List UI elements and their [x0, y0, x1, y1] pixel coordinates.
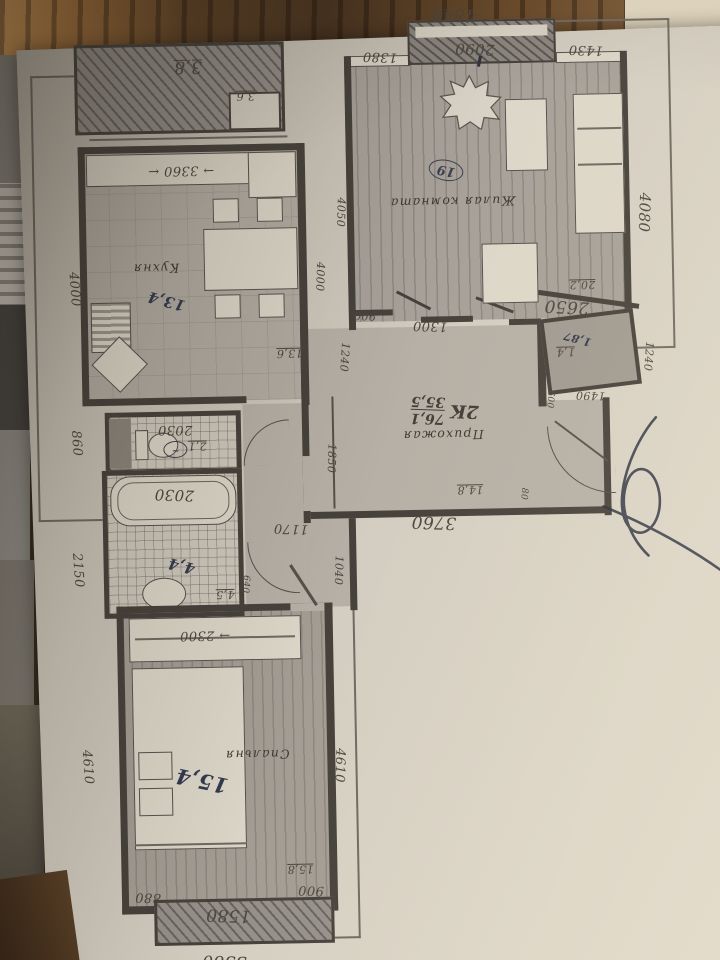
- room-number-living-pen: 19: [427, 157, 465, 184]
- dim-900-bedroom: 900: [298, 883, 324, 897]
- dim-2090: 2090: [455, 41, 495, 57]
- dim-4000: 4000: [67, 272, 82, 308]
- dim-860: 860: [69, 430, 84, 457]
- area-kitchen-pen: 13,4: [146, 289, 187, 313]
- dim-80: 80: [518, 487, 528, 500]
- dim-3760: 3760: [411, 512, 456, 530]
- dim-2030-bath: 2030: [154, 486, 194, 502]
- area-bath: 4,5: [216, 589, 235, 600]
- dim-880: 880: [135, 890, 161, 904]
- dim-3360-bottom: 3360: [201, 951, 246, 960]
- area-kitchen: 13,6: [276, 348, 302, 359]
- room-name-hall: Прихожая: [402, 427, 483, 441]
- area-loggia-1: 3,8: [174, 57, 203, 75]
- dim-600: 600: [544, 390, 554, 409]
- dim-4000-b: 4000: [314, 262, 326, 292]
- area-living: 20,2: [569, 279, 595, 290]
- dim-1490: 1490: [575, 390, 605, 402]
- dim-640: 640: [240, 575, 250, 594]
- area-loggia-1b: 3,6: [236, 90, 255, 101]
- area-bedroom-pen: 15,4: [174, 765, 230, 796]
- dim-1380: 1380: [362, 49, 397, 63]
- area-hall: 14,8: [457, 484, 483, 495]
- dim-1170: 1170: [273, 521, 308, 535]
- room-name-bedroom: Спальня: [225, 747, 290, 761]
- dim-1580: 1580: [206, 905, 251, 923]
- dim-4610-left: 4610: [80, 750, 95, 786]
- floor-plan-drawing: 2К 76,1 35,5 48401380209014303,83,6→ 336…: [0, 0, 720, 960]
- dim-2150: 2150: [70, 553, 85, 589]
- area-bath-pen: 4,4: [167, 555, 197, 576]
- room-name-living: Жилая комната: [390, 194, 516, 209]
- area-bedroom: 15,8: [287, 863, 313, 874]
- dim-4080: 4080: [636, 192, 652, 232]
- dim-900-living: 900: [354, 310, 377, 322]
- photo-of-floor-plan: 2К 76,1 35,5 48401380209014303,83,6→ 336…: [0, 0, 720, 960]
- dim-1850: 1850: [326, 444, 338, 474]
- dim-2650: 2650: [544, 296, 590, 315]
- dim-2300: → 2300: [180, 628, 231, 642]
- dim-4050: 4050: [335, 197, 347, 227]
- dim-1240-hall: 1240: [338, 342, 351, 372]
- area-wc: 2,1: [188, 440, 207, 451]
- dim-1430: 1430: [568, 43, 603, 57]
- room-name-kitchen: Кухня: [133, 261, 180, 274]
- dim-3360-window: → 3360 ←: [148, 163, 215, 177]
- dim-overall-top: 4840: [430, 5, 475, 23]
- dim-1300: 1300: [412, 319, 447, 333]
- dim-2030-wc: 2030: [158, 423, 193, 436]
- dim-4610-right: 4610: [332, 748, 346, 783]
- dim-1040: 1040: [333, 555, 345, 585]
- dim-1240-closet: 1240: [642, 341, 655, 371]
- plan-labels: 48401380209014303,83,6→ 3360 ←Кухня13,41…: [0, 0, 720, 960]
- mark-wc-circled: ~: [163, 441, 187, 458]
- area-closet: 1,4: [556, 346, 575, 357]
